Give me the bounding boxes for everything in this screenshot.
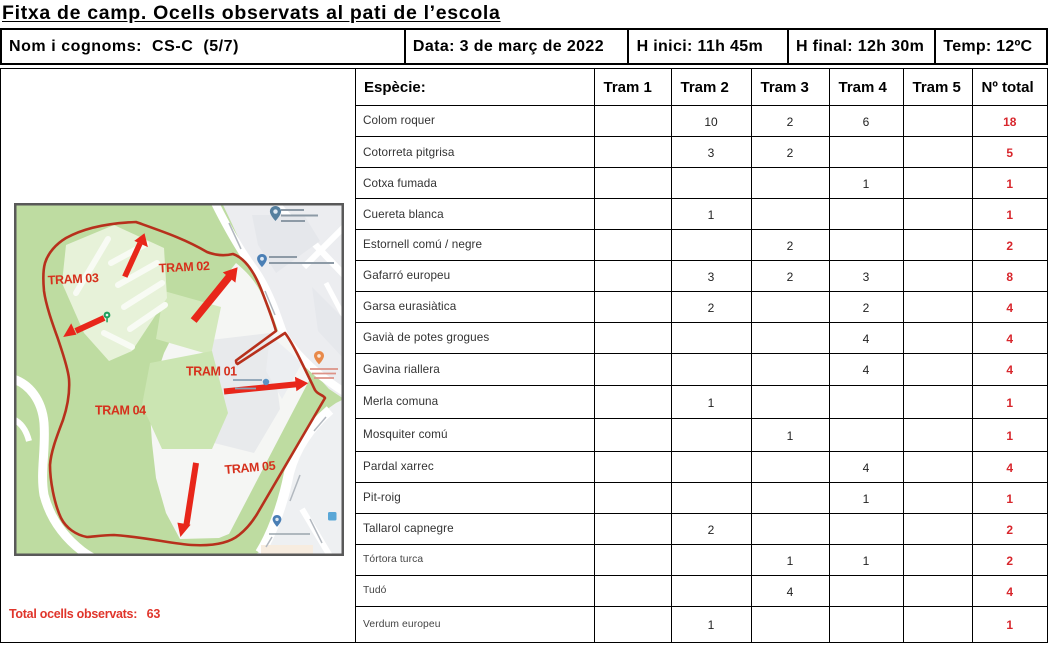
svg-text:TRAM 02: TRAM 02 xyxy=(158,259,210,276)
svg-text:TRAM 01: TRAM 01 xyxy=(186,365,237,379)
svg-text:TRAM 03: TRAM 03 xyxy=(47,271,99,288)
svg-text:TRAM 04: TRAM 04 xyxy=(95,404,146,418)
